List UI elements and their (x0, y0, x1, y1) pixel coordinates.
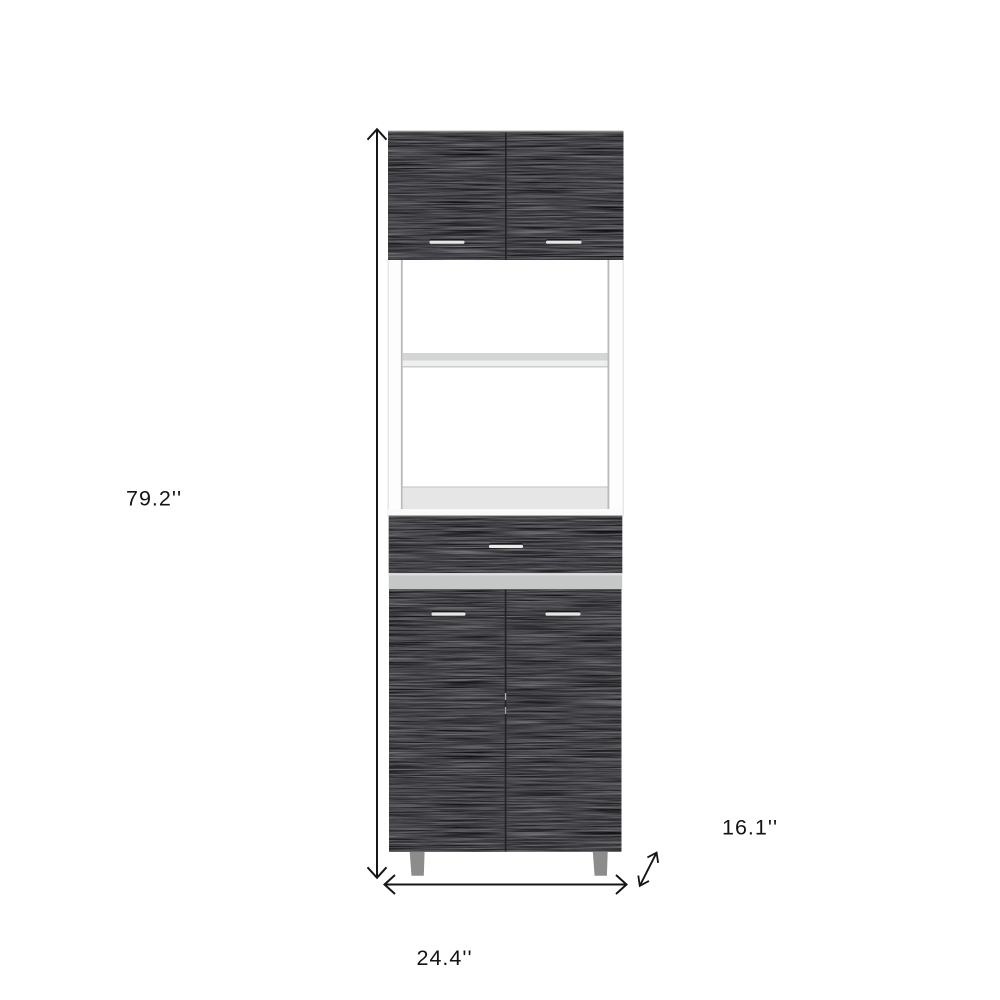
svg-text:79.2'': 79.2'' (126, 487, 182, 511)
svg-text:24.4'': 24.4'' (417, 946, 473, 970)
svg-text:16.1'': 16.1'' (722, 816, 778, 840)
